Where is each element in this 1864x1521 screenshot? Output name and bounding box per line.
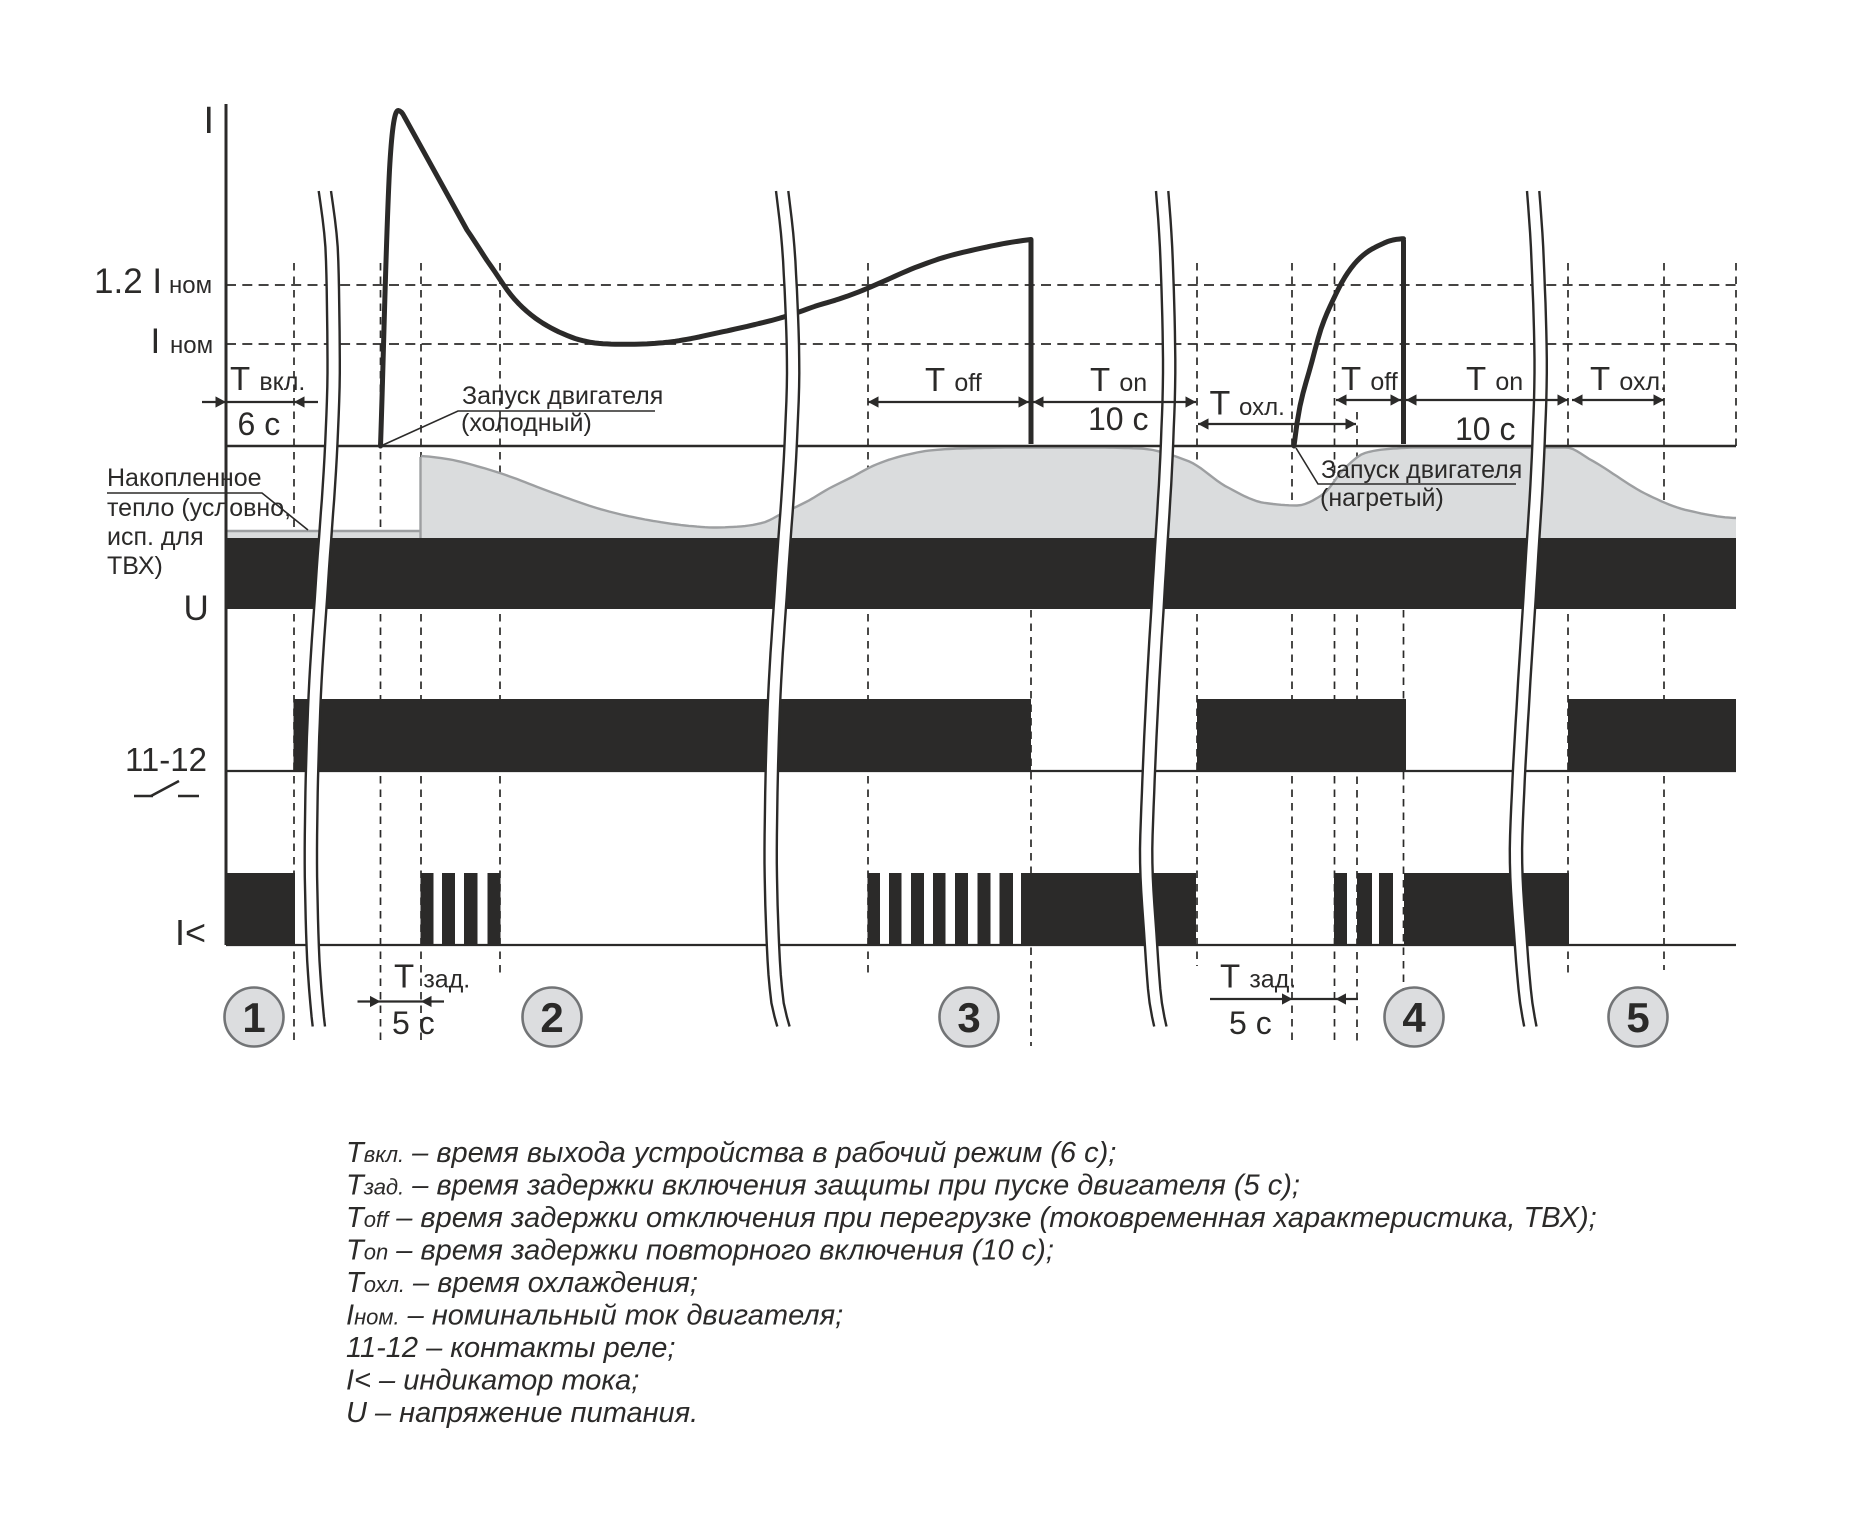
svg-text:3: 3 [957,994,980,1041]
svg-text:U: U [184,589,209,628]
svg-text:Накопленное: Накопленное [107,464,262,492]
svg-text:Тoff – время задержки отключен: Тoff – время задержки отключения при пер… [346,1202,1597,1234]
svg-text:10 с: 10 с [1455,411,1515,447]
svg-text:5 с: 5 с [392,1005,435,1041]
svg-text:I<: I< [175,912,206,953]
svg-text:I: I [151,322,161,361]
svg-text:4: 4 [1402,994,1426,1041]
svg-text:тепло (условно,: тепло (условно, [107,494,291,522]
svg-text:Iном. – номинальный ток двигат: Iном. – номинальный ток двигателя; [346,1300,843,1332]
svg-text:охл.: охл. [1239,394,1285,421]
svg-text:(нагретый): (нагретый) [1320,484,1444,512]
svg-text:Запуск двигателя: Запуск двигателя [1321,456,1522,484]
svg-text:(холодный): (холодный) [461,409,592,437]
svg-text:исп. для: исп. для [107,523,204,551]
svg-text:11-12: 11-12 [125,741,207,778]
svg-text:I< – индикатор тока;: I< – индикатор тока; [346,1365,639,1397]
svg-text:1.2 I: 1.2 I [94,262,162,301]
svg-text:1: 1 [242,994,265,1041]
svg-text:Твкл. – время выхода устройств: Твкл. – время выхода устройства в рабочи… [346,1137,1116,1169]
svg-text:ТВХ): ТВХ) [107,552,163,580]
svg-text:2: 2 [540,994,563,1041]
svg-text:Тохл. – время охлаждения;: Тохл. – время охлаждения; [346,1267,698,1299]
svg-text:ном: ном [170,332,213,359]
svg-text:Тзад. – время задержки включен: Тзад. – время задержки включения защиты … [346,1170,1300,1202]
svg-text:Тon – время задержки повторног: Тon – время задержки повторного включени… [346,1235,1054,1267]
svg-text:11-12 – контакты реле;: 11-12 – контакты реле; [346,1332,675,1364]
svg-text:Запуск двигателя: Запуск двигателя [462,382,663,410]
svg-text:5: 5 [1626,994,1649,1041]
svg-text:I: I [204,100,215,142]
svg-text:5 с: 5 с [1229,1005,1272,1041]
svg-text:U – напряжение питания.: U – напряжение питания. [346,1397,698,1429]
svg-text:6 с: 6 с [238,406,281,442]
svg-text:10 с: 10 с [1088,401,1148,437]
svg-text:Т: Т [1210,385,1231,423]
svg-text:ном: ном [169,272,212,299]
